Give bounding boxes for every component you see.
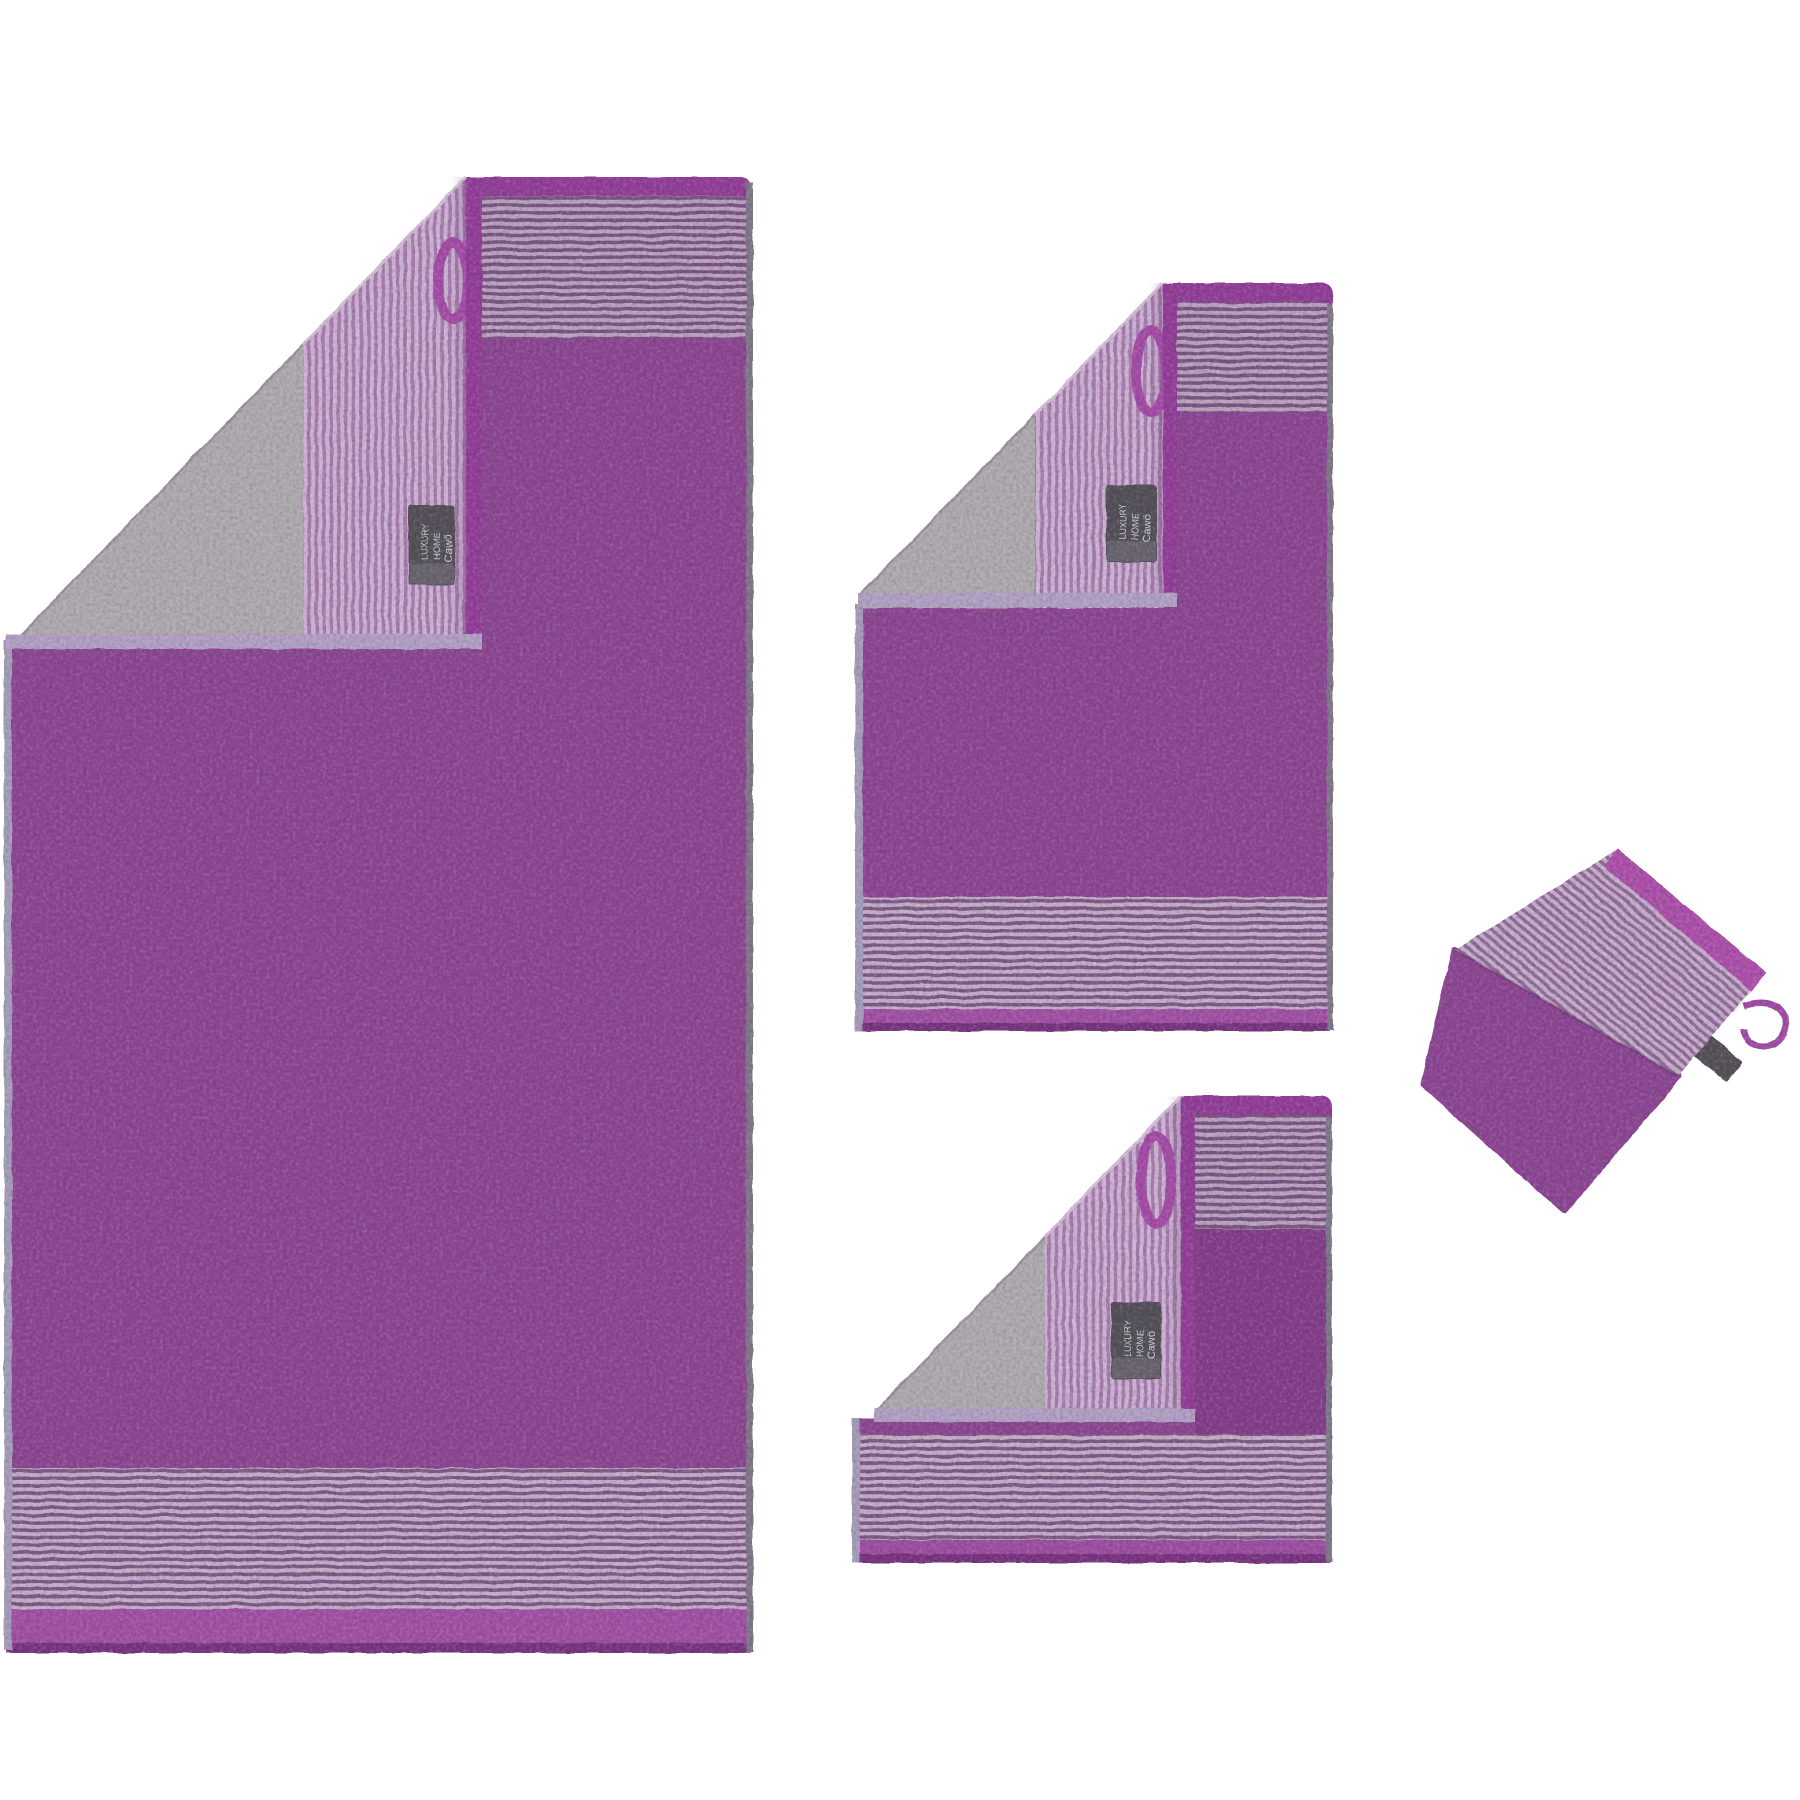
svg-text:LUXURY: LUXURY: [1123, 1321, 1133, 1357]
svg-text:LUXURY: LUXURY: [1118, 504, 1128, 540]
svg-text:Cawö: Cawö: [1141, 514, 1153, 542]
svg-text:HOME: HOME: [1130, 513, 1140, 540]
svg-text:Cawö: Cawö: [443, 534, 455, 562]
svg-text:HOME: HOME: [1135, 1330, 1145, 1357]
svg-text:LUXURY: LUXURY: [420, 524, 430, 560]
svg-text:Cawö: Cawö: [1146, 1331, 1158, 1359]
svg-text:HOME: HOME: [432, 533, 442, 560]
